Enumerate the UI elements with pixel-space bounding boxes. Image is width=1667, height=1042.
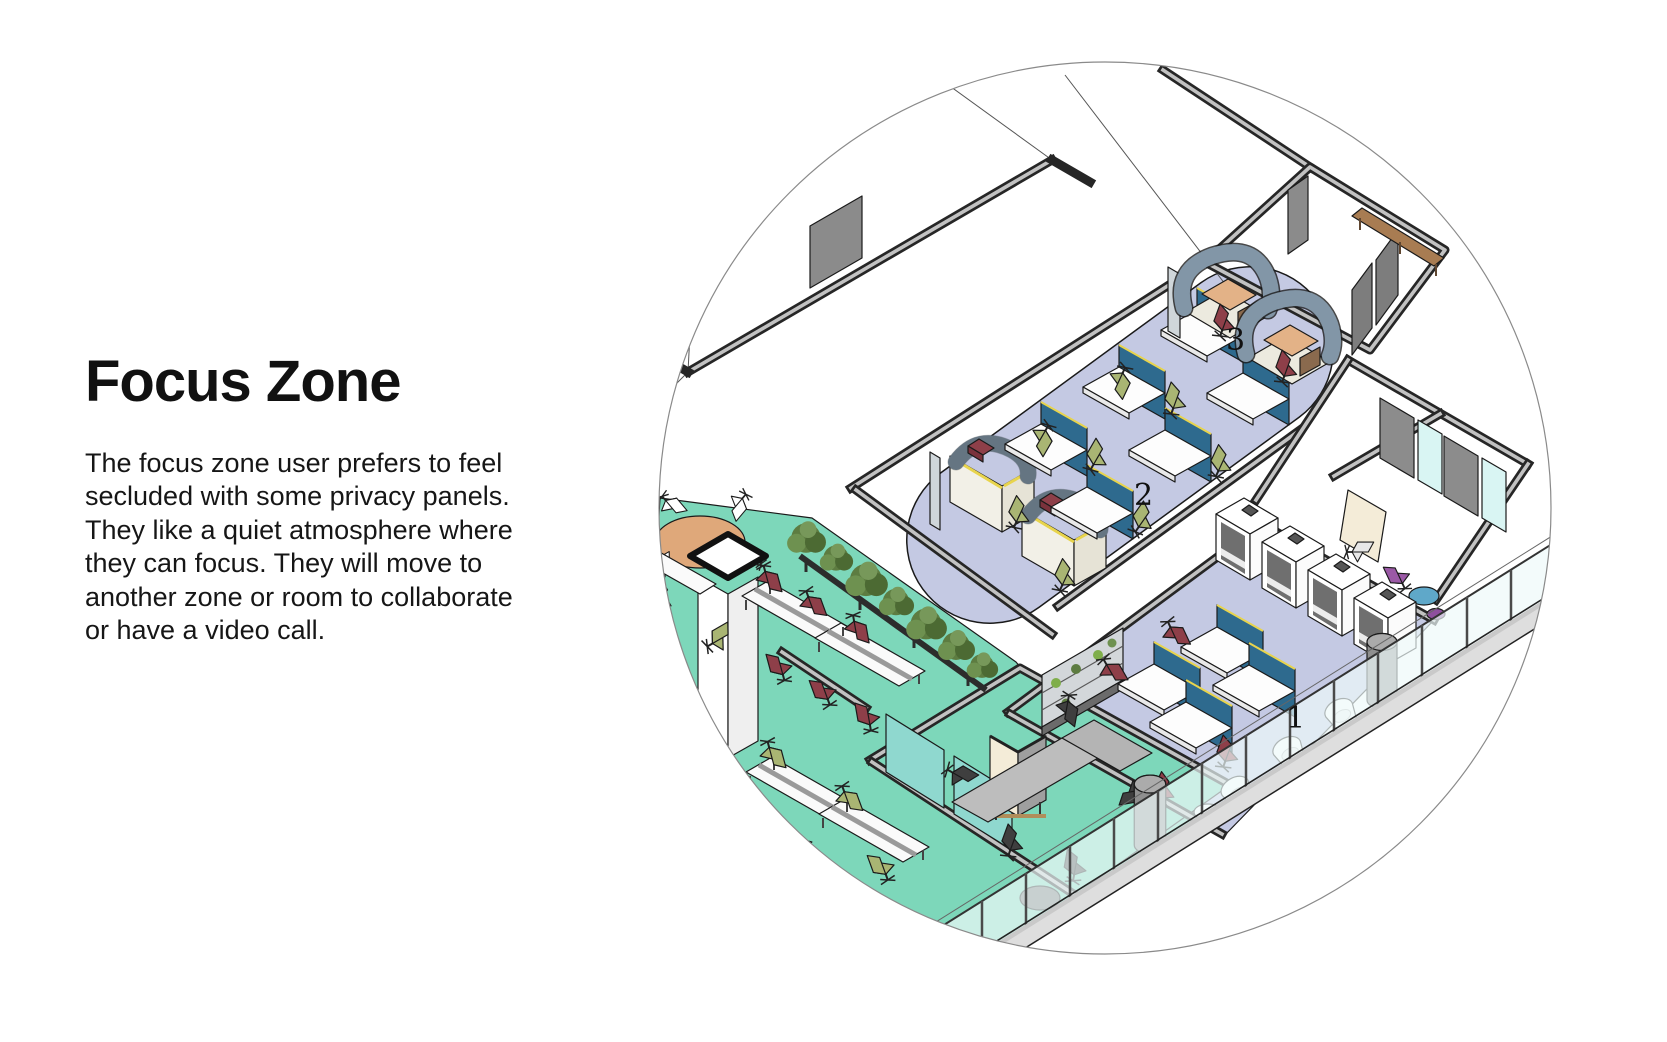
- slide: Focus Zone The focus zone user prefers t…: [0, 0, 1667, 1042]
- zone-label-3: 3: [1226, 323, 1245, 358]
- floorplan-illustration: 1 2 3: [0, 0, 1667, 1042]
- zone-label-1: 1: [1286, 701, 1305, 736]
- zone-label-2: 2: [1134, 478, 1153, 513]
- door-gray: [1288, 176, 1308, 254]
- privacy-screen: [930, 452, 940, 530]
- floorplan-svg: 1 2 3: [0, 0, 1667, 1042]
- scene: 1 2 3: [630, 30, 1590, 1042]
